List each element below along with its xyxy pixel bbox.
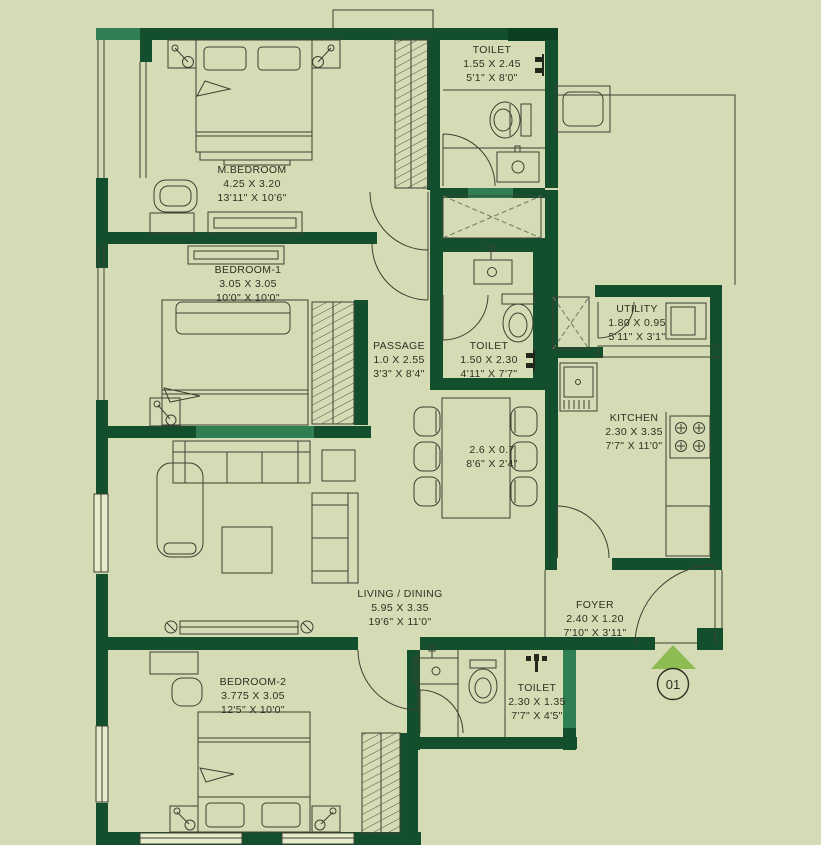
- room-dim-imperial: 19'6" X 11'0": [320, 616, 480, 630]
- room-name: TOILET: [412, 44, 572, 58]
- room-dim-metric: 2.6 X 0.7: [412, 444, 572, 458]
- room-dim-imperial: 7'10" X 3'11": [515, 627, 675, 641]
- wc-icon: [490, 102, 531, 138]
- sofa-set: [157, 441, 358, 583]
- tv-unit: [165, 621, 313, 634]
- room-dim-metric: 1.80 X 0.95: [557, 317, 717, 331]
- room-label-toilet-bottom: TOILET 2.30 X 1.35 7'7" X 4'5": [457, 682, 617, 724]
- room-name: BEDROOM-2: [173, 676, 333, 690]
- room-name: LIVING / DINING: [320, 588, 480, 602]
- room-label-foyer: FOYER 2.40 X 1.20 7'10" X 3'11": [515, 599, 675, 641]
- room-dim-metric: 3.775 X 3.05: [173, 690, 333, 704]
- room-name: KITCHEN: [554, 412, 714, 426]
- room-name: BEDROOM-1: [168, 264, 328, 278]
- basin-icon: [414, 646, 458, 684]
- room-dim-imperial: 4'11" X 7'7": [409, 368, 569, 382]
- room-dim-imperial: 5'1" X 8'0": [412, 72, 572, 86]
- room-dim-imperial: 5'11" X 3'1": [557, 331, 717, 345]
- room-label-utility: UTILITY 1.80 X 0.95 5'11" X 3'1": [557, 303, 717, 345]
- room-label-toilet-mid: TOILET 1.50 X 2.30 4'11" X 7'7": [409, 340, 569, 382]
- room-label-toilet-top: TOILET 1.55 X 2.45 5'1" X 8'0": [412, 44, 572, 86]
- room-dim-imperial: 8'6" X 2'4": [412, 458, 572, 472]
- dining-table-dims: 2.6 X 0.7 8'6" X 2'4": [412, 444, 572, 472]
- nightstand-lamp-icon: [150, 398, 180, 426]
- room-dim-imperial: 10'0" X 10'0": [168, 292, 328, 306]
- room-dim-metric: 3.05 X 3.05: [168, 278, 328, 292]
- room-dim-metric: 4.25 X 3.20: [172, 178, 332, 192]
- room-dim-metric: 1.50 X 2.30: [409, 354, 569, 368]
- room-name: TOILET: [409, 340, 569, 354]
- basin-icon: [497, 146, 539, 182]
- room-dim-imperial: 7'7" X 4'5": [457, 710, 617, 724]
- floor-plan-canvas: 01 M.BEDROOM 4.25 X 3.20 13'11" X 10'6" …: [0, 0, 821, 845]
- unit-number-text: 01: [666, 677, 680, 692]
- room-name: FOYER: [515, 599, 675, 613]
- wc-icon: [502, 294, 534, 342]
- room-name: TOILET: [457, 682, 617, 696]
- room-label-mbedroom: M.BEDROOM 4.25 X 3.20 13'11" X 10'6": [172, 164, 332, 206]
- entry-arrow: [651, 645, 696, 669]
- room-dim-imperial: 12'5" X 10'0": [173, 704, 333, 718]
- room-name: UTILITY: [557, 303, 717, 317]
- fridge-icon: [666, 506, 710, 556]
- unit-number-marker: 01: [658, 669, 689, 700]
- room-dim-imperial: 13'11" X 10'6": [172, 192, 332, 206]
- room-label-kitchen: KITCHEN 2.30 X 3.35 7'7" X 11'0": [554, 412, 714, 454]
- nightstand-lamp-icon: [168, 40, 340, 68]
- bathtub-icon: [556, 86, 610, 132]
- bed-2: [198, 712, 310, 832]
- room-name: M.BEDROOM: [172, 164, 332, 178]
- room-dim-metric: 5.95 X 3.35: [320, 602, 480, 616]
- room-dim-metric: 2.30 X 1.35: [457, 696, 617, 710]
- nightstand-lamp-icon: [170, 806, 340, 832]
- room-dim-imperial: 7'7" X 11'0": [554, 440, 714, 454]
- room-dim-metric: 2.40 X 1.20: [515, 613, 675, 627]
- room-dim-metric: 2.30 X 3.35: [554, 426, 714, 440]
- room-dim-metric: 1.55 X 2.45: [412, 58, 572, 72]
- room-label-bedroom1: BEDROOM-1 3.05 X 3.05 10'0" X 10'0": [168, 264, 328, 306]
- room-label-bedroom2: BEDROOM-2 3.775 X 3.05 12'5" X 10'0": [173, 676, 333, 718]
- room-label-living-dining: LIVING / DINING 5.95 X 3.35 19'6" X 11'0…: [320, 588, 480, 630]
- shower-head-icon: [526, 654, 547, 672]
